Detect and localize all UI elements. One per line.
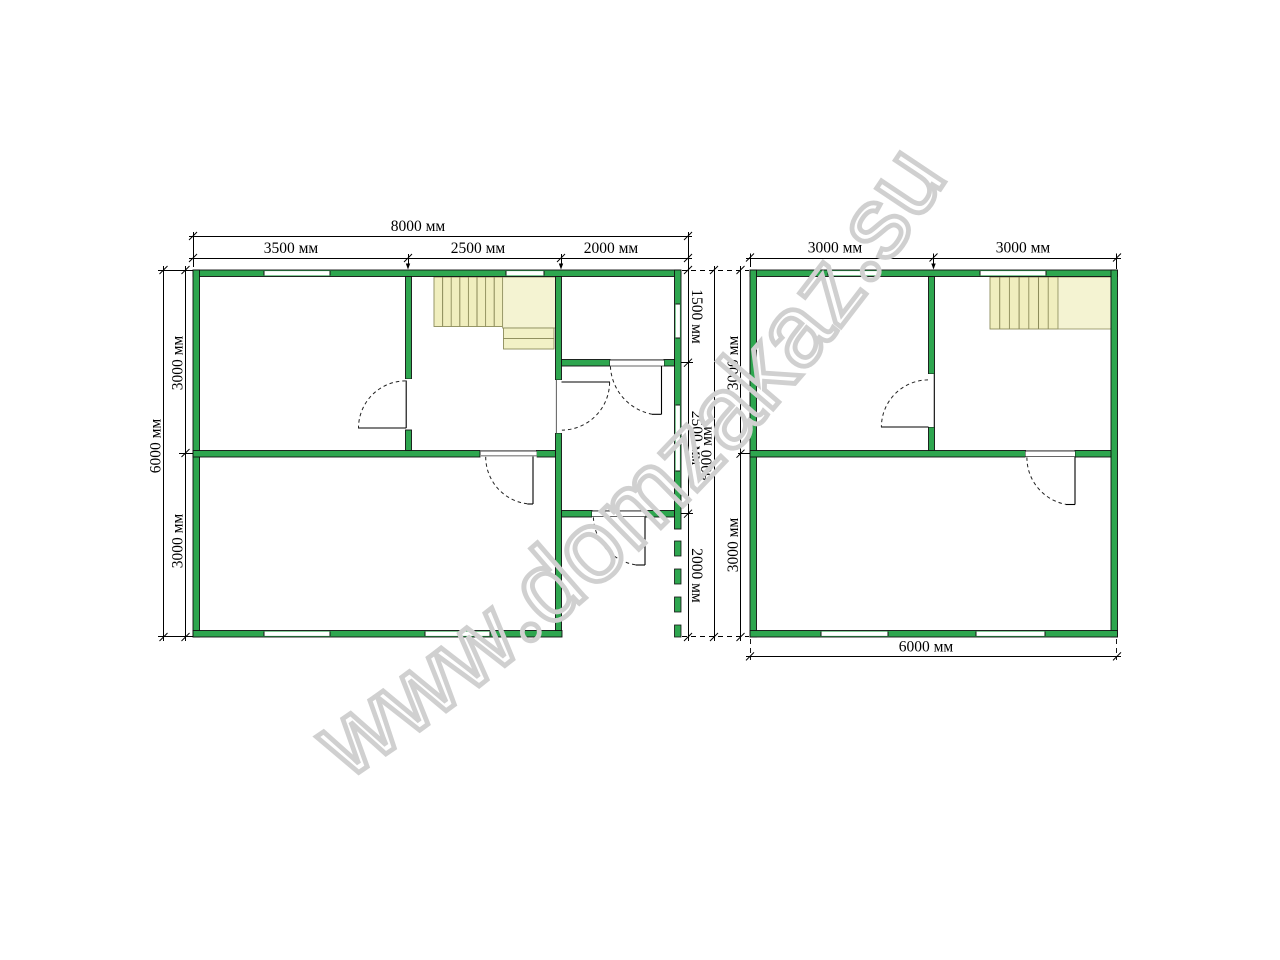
svg-text:2000 мм: 2000 мм [584, 240, 639, 257]
svg-text:6000 мм: 6000 мм [148, 419, 165, 474]
svg-text:3000 мм: 3000 мм [996, 240, 1051, 257]
svg-text:2000 мм: 2000 мм [688, 548, 705, 603]
svg-text:3000 мм: 3000 мм [170, 336, 187, 391]
svg-text:2500 мм: 2500 мм [451, 240, 506, 257]
svg-text:3500 мм: 3500 мм [264, 240, 319, 257]
svg-text:3000 мм: 3000 мм [170, 514, 187, 569]
svg-text:1500 мм: 1500 мм [688, 289, 705, 344]
svg-text:6000 мм: 6000 мм [899, 639, 954, 656]
svg-text:3000 мм: 3000 мм [725, 518, 742, 573]
svg-text:8000 мм: 8000 мм [391, 218, 446, 235]
